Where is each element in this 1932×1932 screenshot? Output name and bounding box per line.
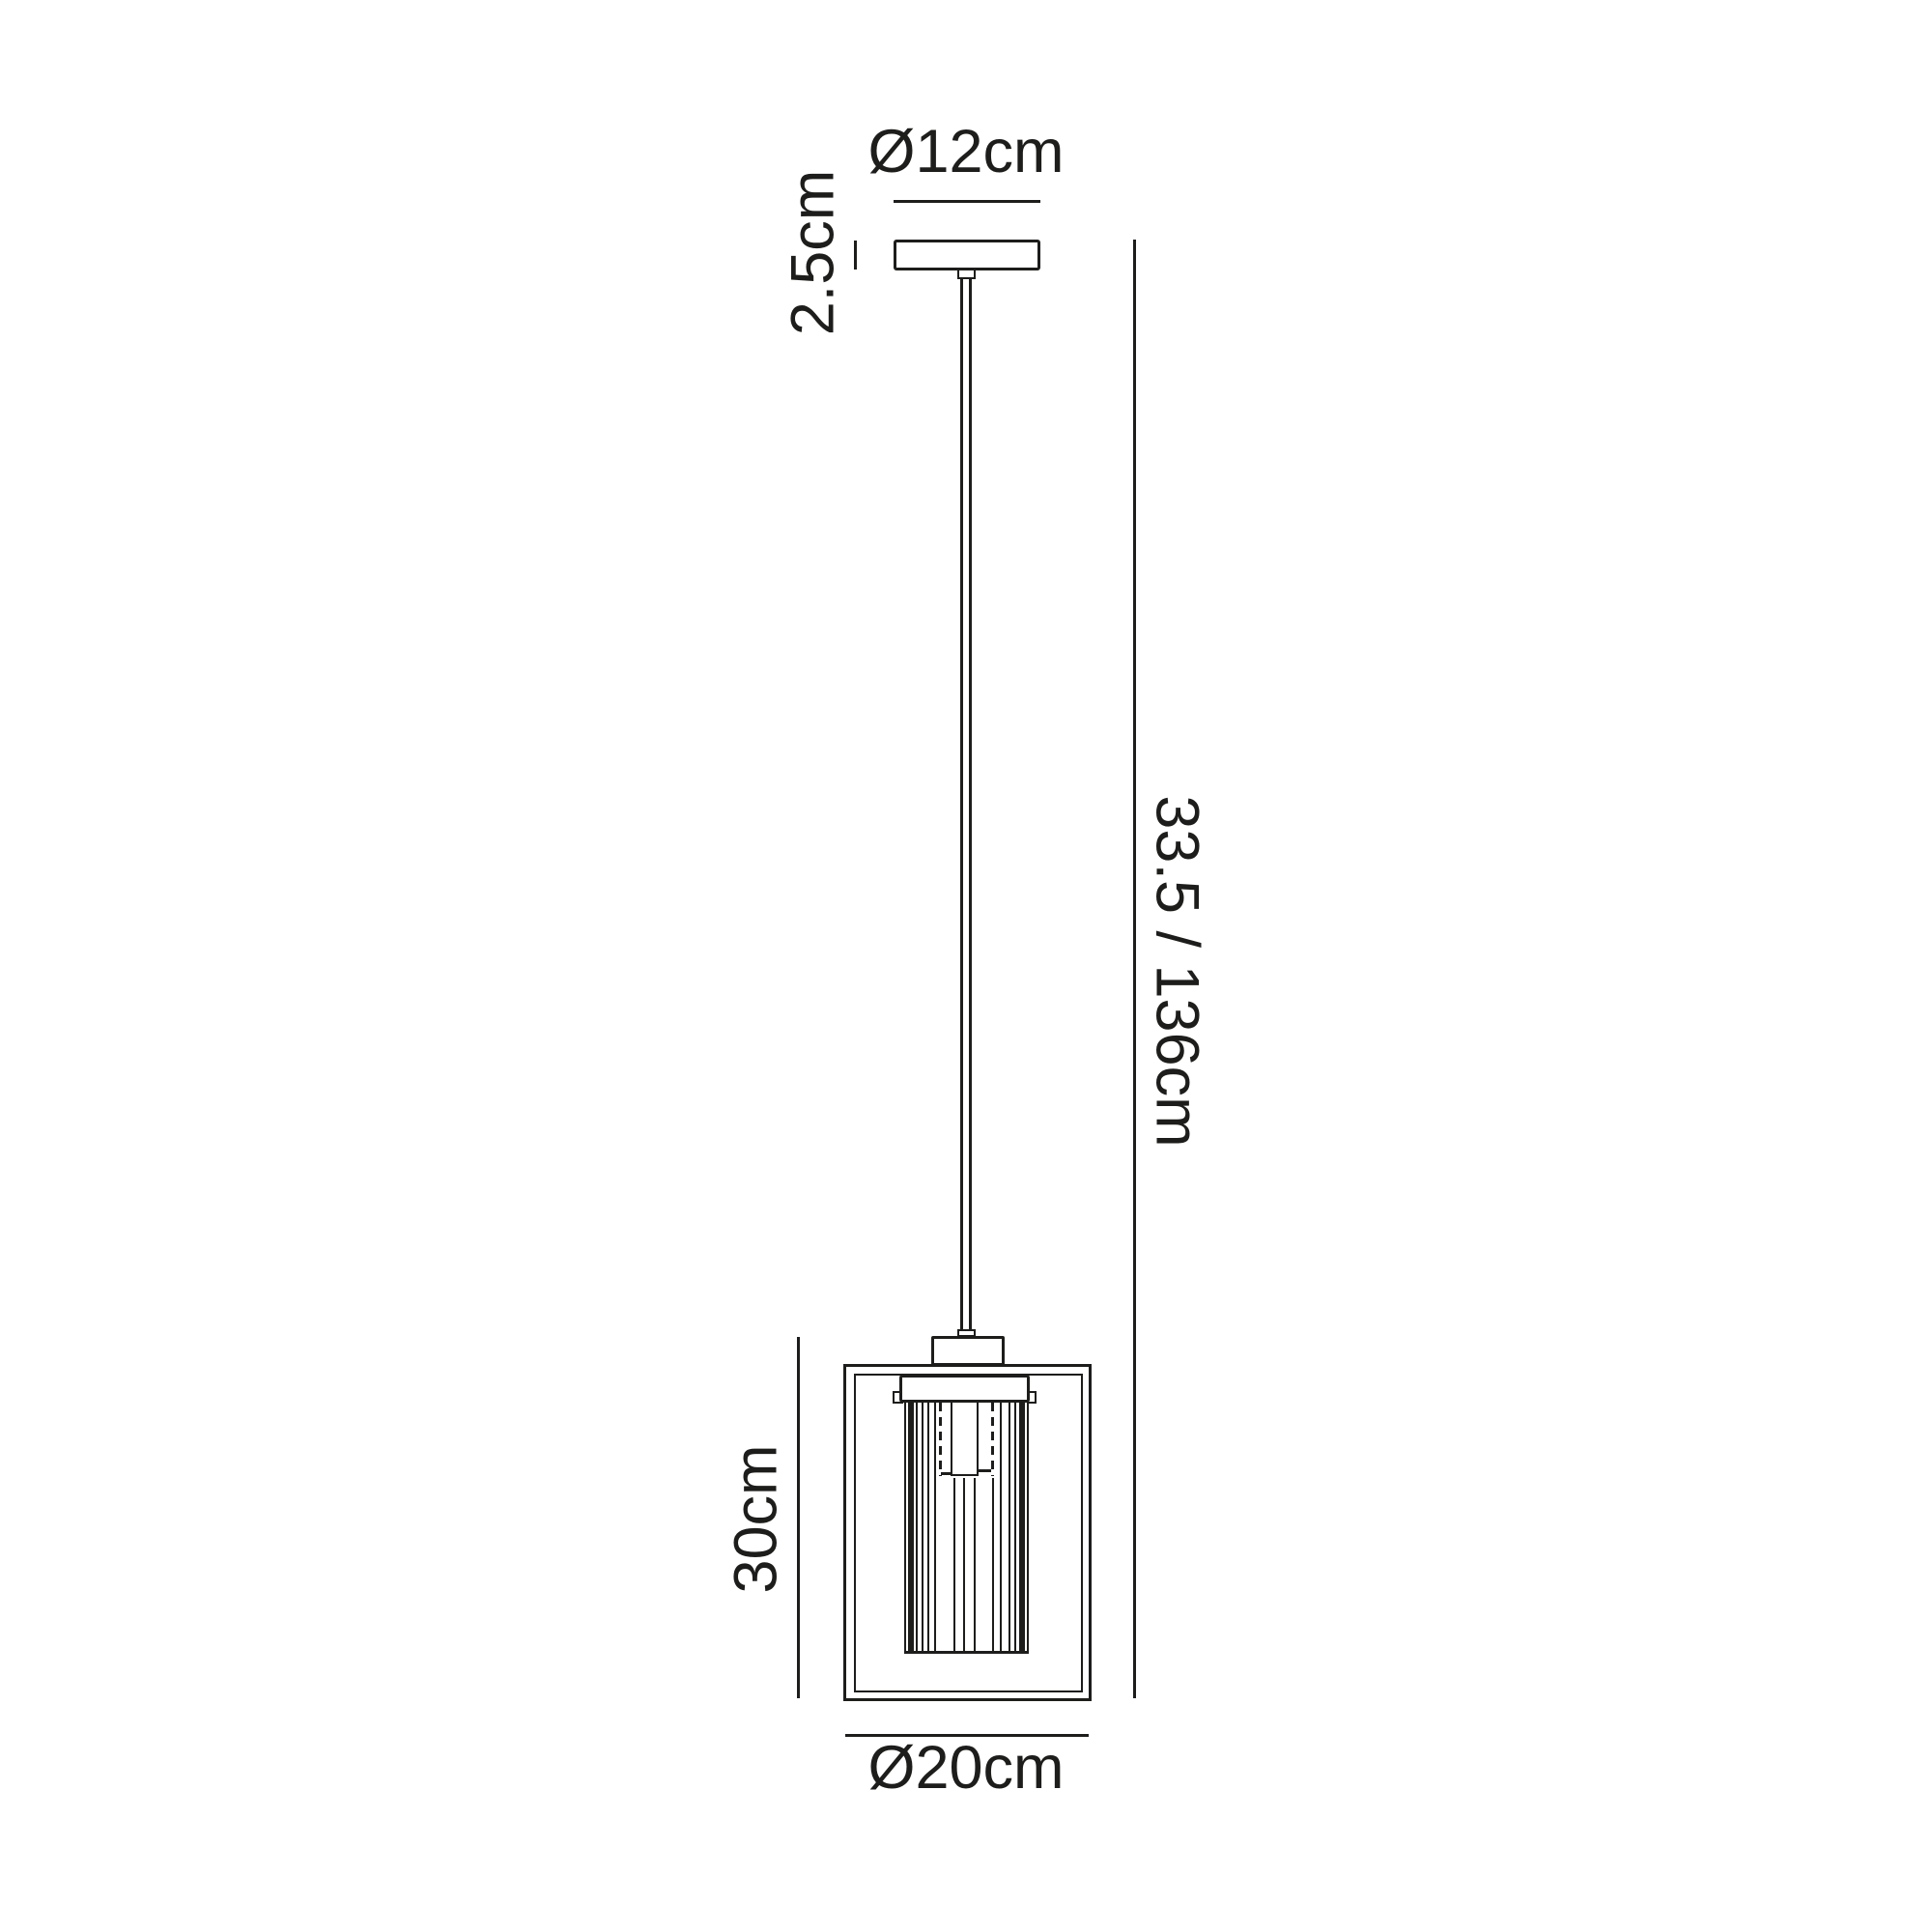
drop-length-label: 33.5 / 136cm — [1147, 769, 1207, 1175]
canopy-diameter-label: Ø12cm — [821, 122, 1111, 183]
pendant-light-dimension-diagram: Ø12cm 2.5cm — [0, 0, 1932, 1932]
glass-rib — [1000, 1403, 1002, 1654]
socket-connector — [941, 1472, 952, 1475]
lamp-socket-dashed-outline — [991, 1403, 994, 1476]
ribbed-glass-shade — [904, 1403, 1029, 1654]
canopy-height-tick — [854, 241, 857, 270]
lamp-socket-area — [936, 1403, 997, 1478]
canopy-height-label: 2.5cm — [783, 156, 844, 350]
ceiling-canopy — [894, 240, 1040, 270]
glass-rib-thick — [1019, 1403, 1025, 1654]
glass-rib — [922, 1403, 923, 1654]
lantern-height-dimension-line — [797, 1337, 800, 1698]
glass-rib — [1009, 1403, 1010, 1654]
canopy-width-dimension-line — [894, 200, 1040, 203]
glass-rib — [1014, 1403, 1016, 1654]
lamp-socket-dashed-outline — [939, 1403, 942, 1476]
socket-connector — [979, 1469, 991, 1472]
shade-edge-left — [904, 1403, 906, 1654]
suspension-rod — [960, 279, 972, 1331]
shade-bottom-rim — [904, 1651, 1029, 1654]
shade-edge-right — [1027, 1403, 1029, 1654]
lantern-diameter-label: Ø20cm — [821, 1738, 1111, 1799]
shade-hanger-plate — [899, 1375, 1030, 1403]
glass-rib — [916, 1403, 918, 1654]
glass-rib-thick — [908, 1403, 914, 1654]
canopy-neck-fitting — [957, 270, 976, 279]
finial-block — [931, 1336, 1005, 1366]
lantern-height-label: 30cm — [726, 1413, 787, 1626]
glass-rib — [927, 1403, 929, 1654]
drop-length-dimension-line — [1133, 240, 1136, 1698]
socket-tube — [951, 1403, 979, 1476]
